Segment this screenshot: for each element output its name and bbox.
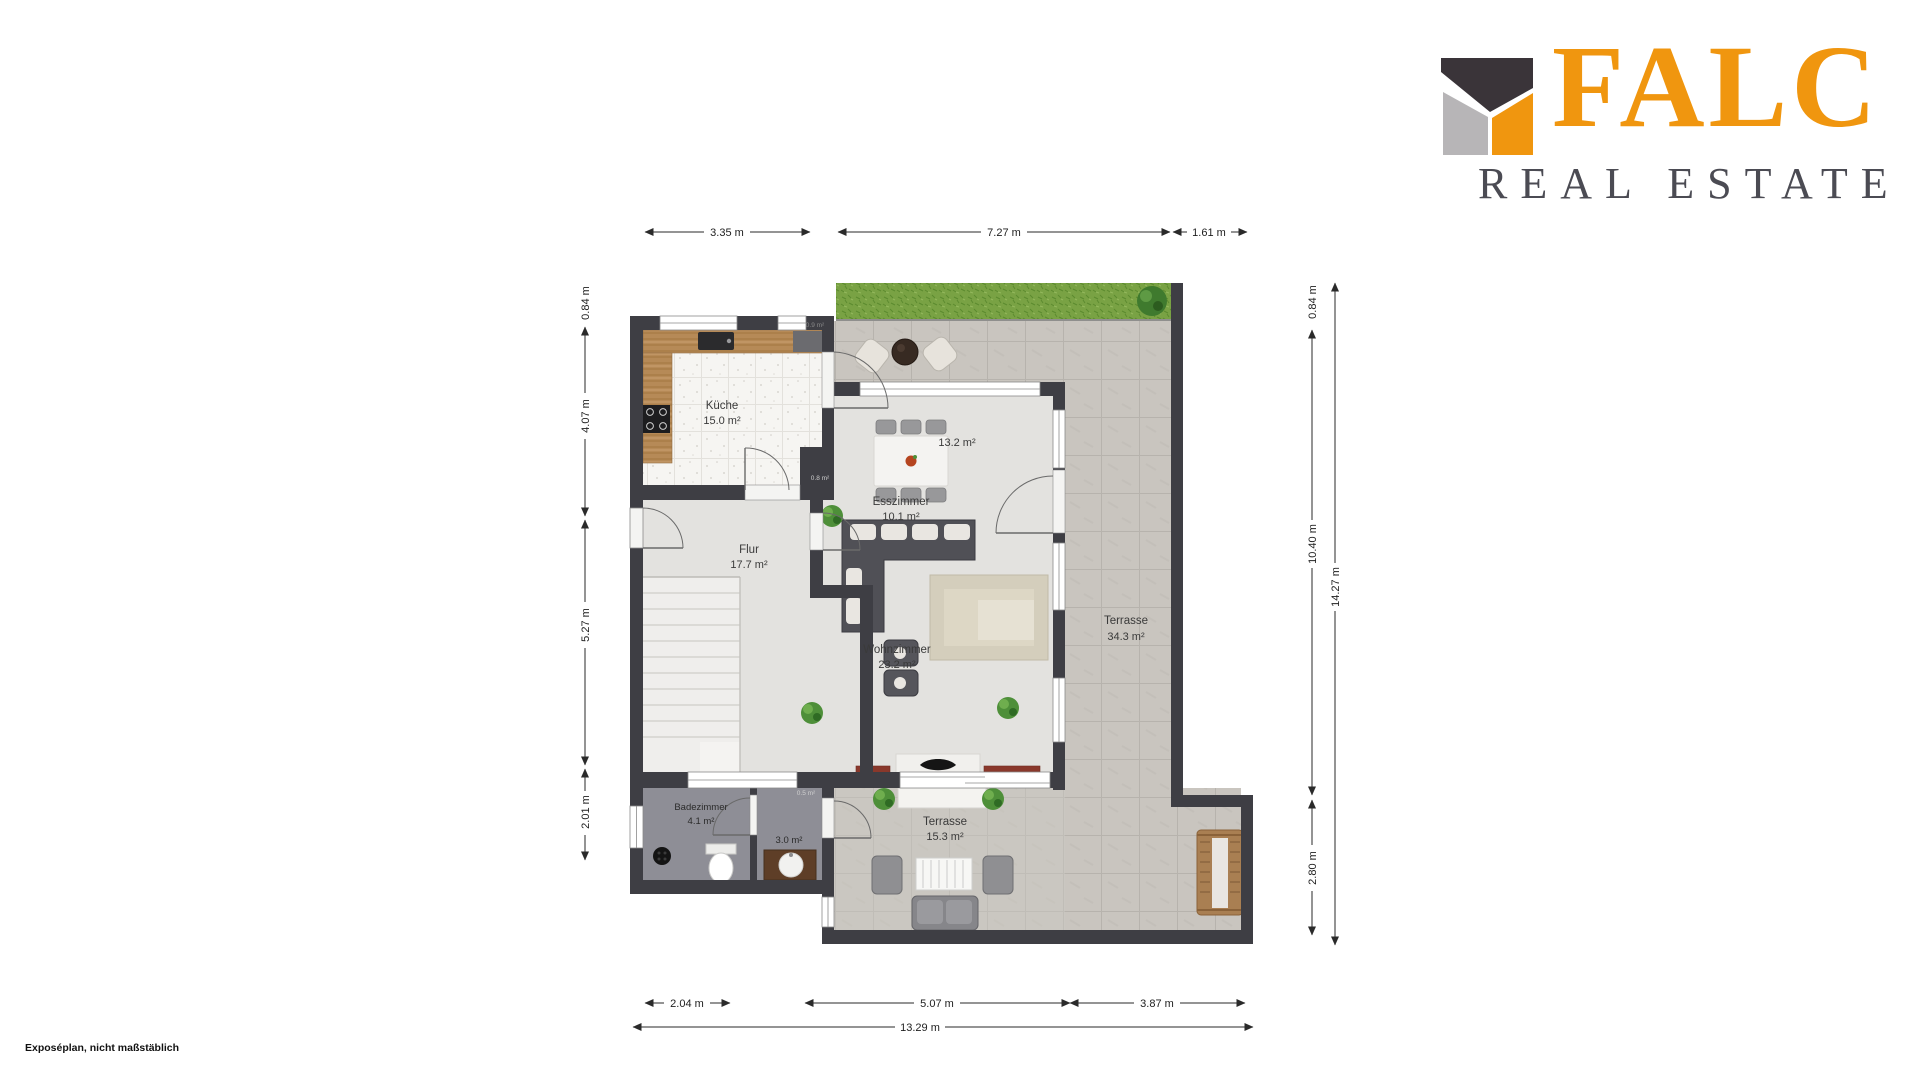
plant [873, 788, 895, 810]
plant [997, 697, 1019, 719]
dim-right-3: 2.80 m [1307, 851, 1319, 885]
room-area-terrasse-klein: 15.3 m² [926, 831, 964, 843]
dim-right-4: 14.27 m [1330, 567, 1342, 607]
dining-set [874, 420, 948, 502]
staircase [643, 577, 740, 772]
window [660, 316, 737, 330]
falc-logo-icon [1440, 55, 1545, 155]
area-label-wc: 3.0 m² [776, 835, 803, 846]
room-label-wohnzimmer: Wohnzimmer [863, 644, 931, 656]
area-label-13-2: 13.2 m² [938, 437, 976, 449]
dimensions-top: 3.35 m 7.27 m 1.61 m [645, 226, 1247, 239]
garden-grass [836, 283, 1171, 321]
dim-top-3: 1.61 m [1192, 227, 1226, 239]
room-label-esszimmer: Esszimmer [873, 496, 930, 508]
window [1053, 543, 1065, 610]
room-label-terrasse-gross: Terrasse [1104, 615, 1148, 627]
window [860, 382, 1040, 396]
plant [801, 702, 823, 724]
dim-bottom-2: 5.07 m [920, 998, 954, 1010]
window [778, 316, 806, 330]
area-label-tiny-2: 0.8 m² [811, 475, 830, 482]
dim-top-1: 3.35 m [710, 227, 744, 239]
falc-logo: FALC REAL ESTATE [1440, 38, 1910, 208]
room-label-terrasse-klein: Terrasse [923, 816, 967, 828]
room-area-esszimmer: 10.1 m² [882, 511, 920, 523]
room-area-terrasse-gross: 34.3 m² [1107, 631, 1145, 643]
dim-left-3: 5.27 m [580, 608, 592, 642]
window [1053, 410, 1065, 468]
room-area-kueche: 15.0 m² [703, 415, 741, 427]
brand-tagline: REAL ESTATE [1478, 158, 1910, 209]
dim-right-2: 10.40 m [1307, 524, 1319, 564]
room-area-flur: 17.7 m² [730, 559, 768, 571]
page: Küche 15.0 m² Flur 17.7 m² Esszimmer 10.… [0, 0, 1920, 1080]
dim-top-2: 7.27 m [987, 227, 1021, 239]
room-label-flur: Flur [739, 544, 759, 556]
brand-name: FALC [1552, 22, 1880, 152]
bush [1137, 286, 1167, 316]
stove [643, 405, 670, 433]
area-label-tiny-3: 0.5 m² [797, 790, 816, 797]
dim-left-1: 0.84 m [580, 286, 592, 320]
dim-bottom-1: 2.04 m [670, 998, 704, 1010]
dim-left-2: 4.07 m [580, 399, 592, 433]
dim-right-1: 0.84 m [1307, 285, 1319, 319]
dimensions-bottom: 2.04 m 5.07 m 3.87 m 13.29 m [633, 997, 1253, 1034]
room-label-kueche: Küche [706, 400, 739, 412]
window [822, 897, 834, 927]
sun-lounger [1197, 830, 1243, 915]
dimensions-left: 0.84 m 4.07 m 5.27 m 2.01 m [579, 281, 592, 860]
dim-bottom-total: 13.29 m [900, 1022, 940, 1034]
room-area-badezimmer: 4.1 m² [688, 816, 715, 827]
sliding-door [900, 772, 1050, 788]
window [630, 806, 643, 848]
plant [982, 788, 1004, 810]
dim-bottom-3: 3.87 m [1140, 998, 1174, 1010]
room-area-wohnzimmer: 23.2 m² [878, 659, 916, 671]
plant [821, 505, 843, 527]
dim-left-4: 2.01 m [580, 795, 592, 829]
room-label-badezimmer: Badezimmer [674, 802, 727, 813]
dimensions-right: 0.84 m 10.40 m 2.80 m 14.27 m [1306, 280, 1342, 945]
area-label-tiny-1: 0.9 m² [806, 322, 825, 329]
window [688, 772, 797, 788]
plan-disclaimer: Exposéplan, nicht maßstäblich [25, 1042, 179, 1054]
window [1053, 678, 1065, 742]
